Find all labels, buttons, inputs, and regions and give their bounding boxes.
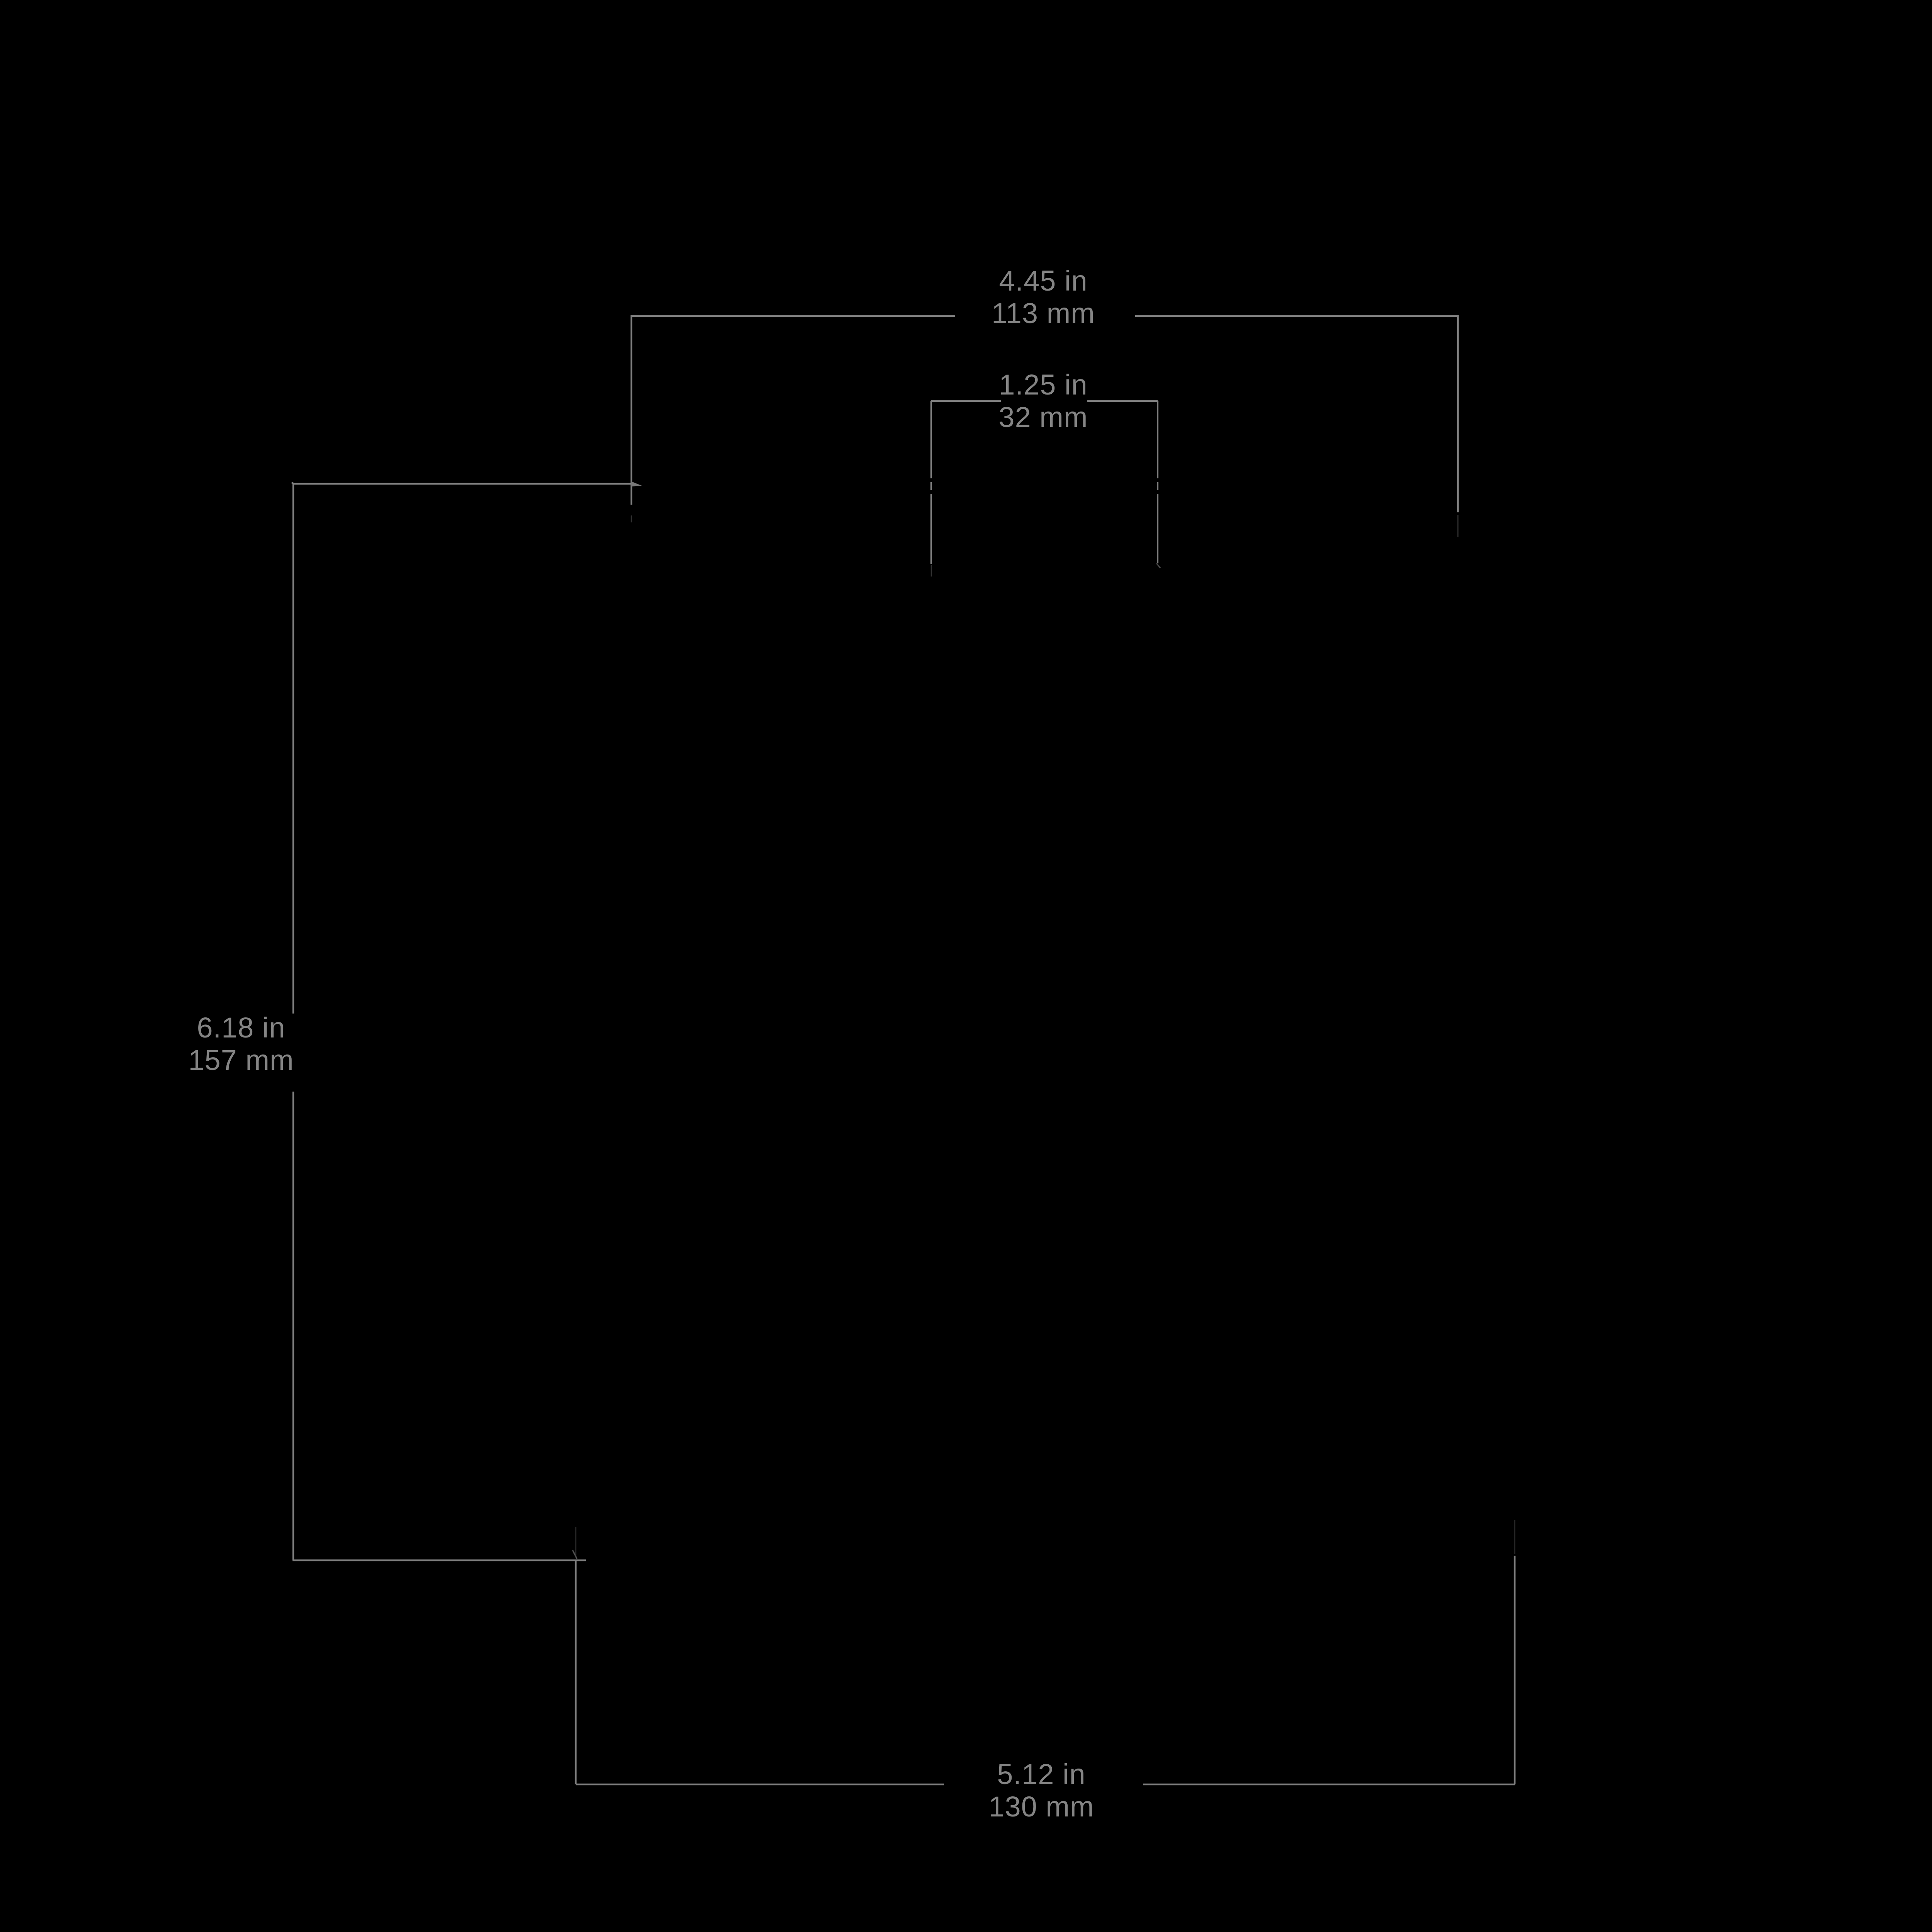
left-height-dim-label: 6.18 in 157 mm	[188, 1012, 294, 1077]
bottom-width-dim-label: 5.12 in 130 mm	[988, 1758, 1094, 1823]
left-height-value-inches: 6.18 in	[188, 1012, 294, 1044]
slot-width-dim-label: 1.25 in 32 mm	[998, 369, 1088, 434]
top-width-value-mm: 113 mm	[992, 297, 1095, 330]
left-height-extension-top-wedge	[631, 481, 642, 486]
dimension-lines-layer	[0, 0, 1932, 1932]
bottom-width-value-inches: 5.12 in	[988, 1758, 1094, 1791]
left-height-value-mm: 157 mm	[188, 1044, 294, 1077]
bottom-width-value-mm: 130 mm	[988, 1791, 1094, 1823]
slot-width-centerline-right-tick	[1156, 563, 1160, 568]
dimension-drawing-canvas: 4.45 in 113 mm 1.25 in 32 mm 6.18 in 157…	[0, 0, 1932, 1932]
top-width-dim-label: 4.45 in 113 mm	[992, 265, 1095, 330]
slot-width-value-mm: 32 mm	[998, 401, 1088, 434]
slot-width-value-inches: 1.25 in	[998, 369, 1088, 401]
top-width-value-inches: 4.45 in	[992, 265, 1095, 297]
